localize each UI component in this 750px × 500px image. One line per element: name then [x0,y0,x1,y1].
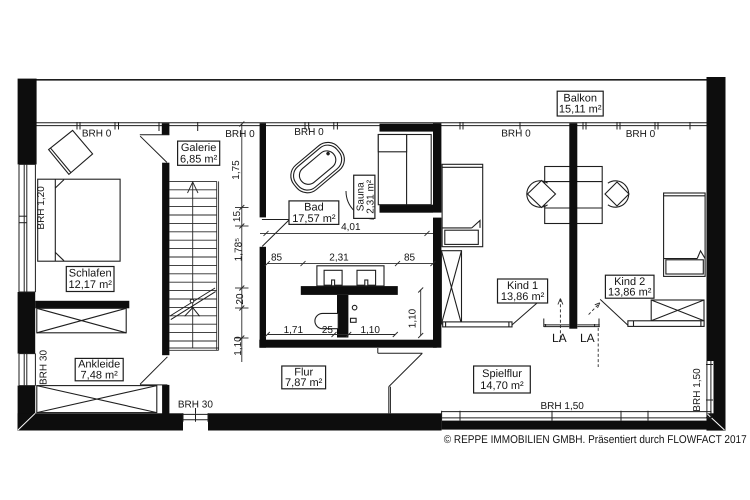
svg-text:Bad: Bad [304,202,324,214]
svg-text:2,31: 2,31 [329,252,349,263]
svg-text:20: 20 [235,293,246,305]
svg-text:LA: LA [552,331,567,345]
svg-text:© REPPE IMMOBILIEN GMBH. Präse: © REPPE IMMOBILIEN GMBH. Präsentiert dur… [444,434,747,446]
svg-text:Spielflur: Spielflur [482,368,522,380]
svg-text:4,01: 4,01 [341,222,361,233]
svg-text:13,86 m²: 13,86 m² [501,291,545,303]
svg-text:BRH 0: BRH 0 [501,129,531,140]
svg-text:BRH 1,50: BRH 1,50 [692,368,703,412]
svg-text:15: 15 [232,211,243,223]
svg-text:1,10: 1,10 [408,308,419,328]
svg-text:BRH 1,20: BRH 1,20 [36,186,47,230]
svg-text:BRH 1,50: BRH 1,50 [541,401,585,412]
svg-text:BRH 0: BRH 0 [82,128,112,139]
svg-text:12,17 m²: 12,17 m² [68,279,112,291]
svg-text:1,10: 1,10 [360,325,380,336]
svg-text:Galerie: Galerie [181,142,216,154]
svg-text:7,87 m²: 7,87 m² [285,377,323,389]
svg-text:BRH 0: BRH 0 [225,129,255,140]
svg-text:25: 25 [322,325,334,336]
svg-text:BRH 0: BRH 0 [626,129,656,140]
svg-text:2,31 m²: 2,31 m² [366,179,377,214]
svg-text:1,71: 1,71 [284,325,304,336]
svg-text:LA: LA [580,331,595,345]
svg-text:BRH 30: BRH 30 [178,400,213,411]
svg-text:85: 85 [404,252,416,263]
svg-text:1,78⁵: 1,78⁵ [234,238,245,262]
svg-text:1,75: 1,75 [231,160,242,180]
svg-text:17,57 m²: 17,57 m² [292,213,336,225]
svg-text:1,10: 1,10 [233,336,244,356]
svg-text:13,86 m²: 13,86 m² [608,287,652,299]
svg-text:7,48 m²: 7,48 m² [81,369,119,381]
svg-text:6,85 m²: 6,85 m² [180,153,218,165]
svg-text:85: 85 [271,252,283,263]
svg-text:15,11 m²: 15,11 m² [559,104,602,116]
svg-text:BRH 30: BRH 30 [39,350,50,385]
svg-text:Kind 1: Kind 1 [507,280,538,292]
svg-text:BRH 0: BRH 0 [294,127,324,138]
svg-text:Schlafen: Schlafen [69,268,112,280]
svg-text:14,70 m²: 14,70 m² [480,380,524,392]
svg-text:Balkon: Balkon [563,92,597,104]
